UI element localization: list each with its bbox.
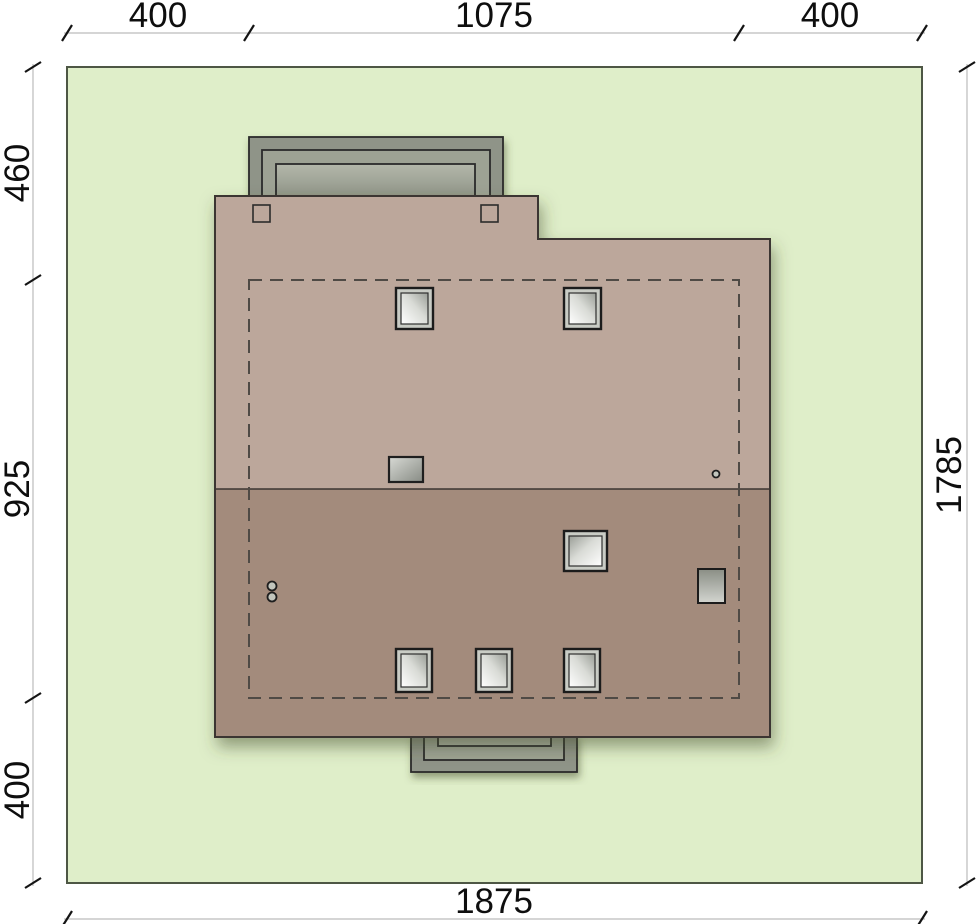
vent-pipe-icon <box>268 582 277 591</box>
dimension-left: 460 925 400 <box>0 62 41 888</box>
skylight-4 <box>396 649 432 692</box>
roof-hatch-left <box>253 205 270 222</box>
site-plan: 400 1075 400 460 925 400 1785 1875 <box>0 0 978 924</box>
dimension-tick <box>62 911 72 924</box>
skylight-small <box>389 457 423 482</box>
dimension-label: 1875 <box>455 882 533 921</box>
skylight-5 <box>476 649 512 692</box>
dimension-top: 400 1075 400 <box>62 0 927 41</box>
vent-pipe-icon <box>268 593 277 602</box>
dimension-label: 1785 <box>930 436 969 514</box>
dimension-label: 460 <box>0 144 37 202</box>
dimension-label: 400 <box>801 0 859 35</box>
dimension-right: 1785 <box>930 62 975 888</box>
terrace-top-step-inner <box>276 164 475 198</box>
dimension-label: 1075 <box>455 0 533 35</box>
skylight-3 <box>564 531 607 571</box>
chimney <box>698 569 725 603</box>
roof-lower-slope <box>215 489 770 737</box>
dimension-tick <box>917 911 927 924</box>
skylight-1 <box>396 288 433 329</box>
terrace-top <box>249 137 503 198</box>
dimension-bottom: 1875 <box>62 882 927 924</box>
vent-pipe-icon <box>713 471 720 478</box>
dimension-label: 925 <box>0 460 37 518</box>
skylight-2 <box>564 288 601 329</box>
terrace-bottom <box>411 735 577 772</box>
roof-hatch-right <box>481 205 498 222</box>
site-plan-drawing: 400 1075 400 460 925 400 1785 1875 <box>0 0 978 924</box>
skylight-6 <box>564 649 600 692</box>
dimension-label: 400 <box>0 761 37 819</box>
dimension-label: 400 <box>129 0 187 35</box>
